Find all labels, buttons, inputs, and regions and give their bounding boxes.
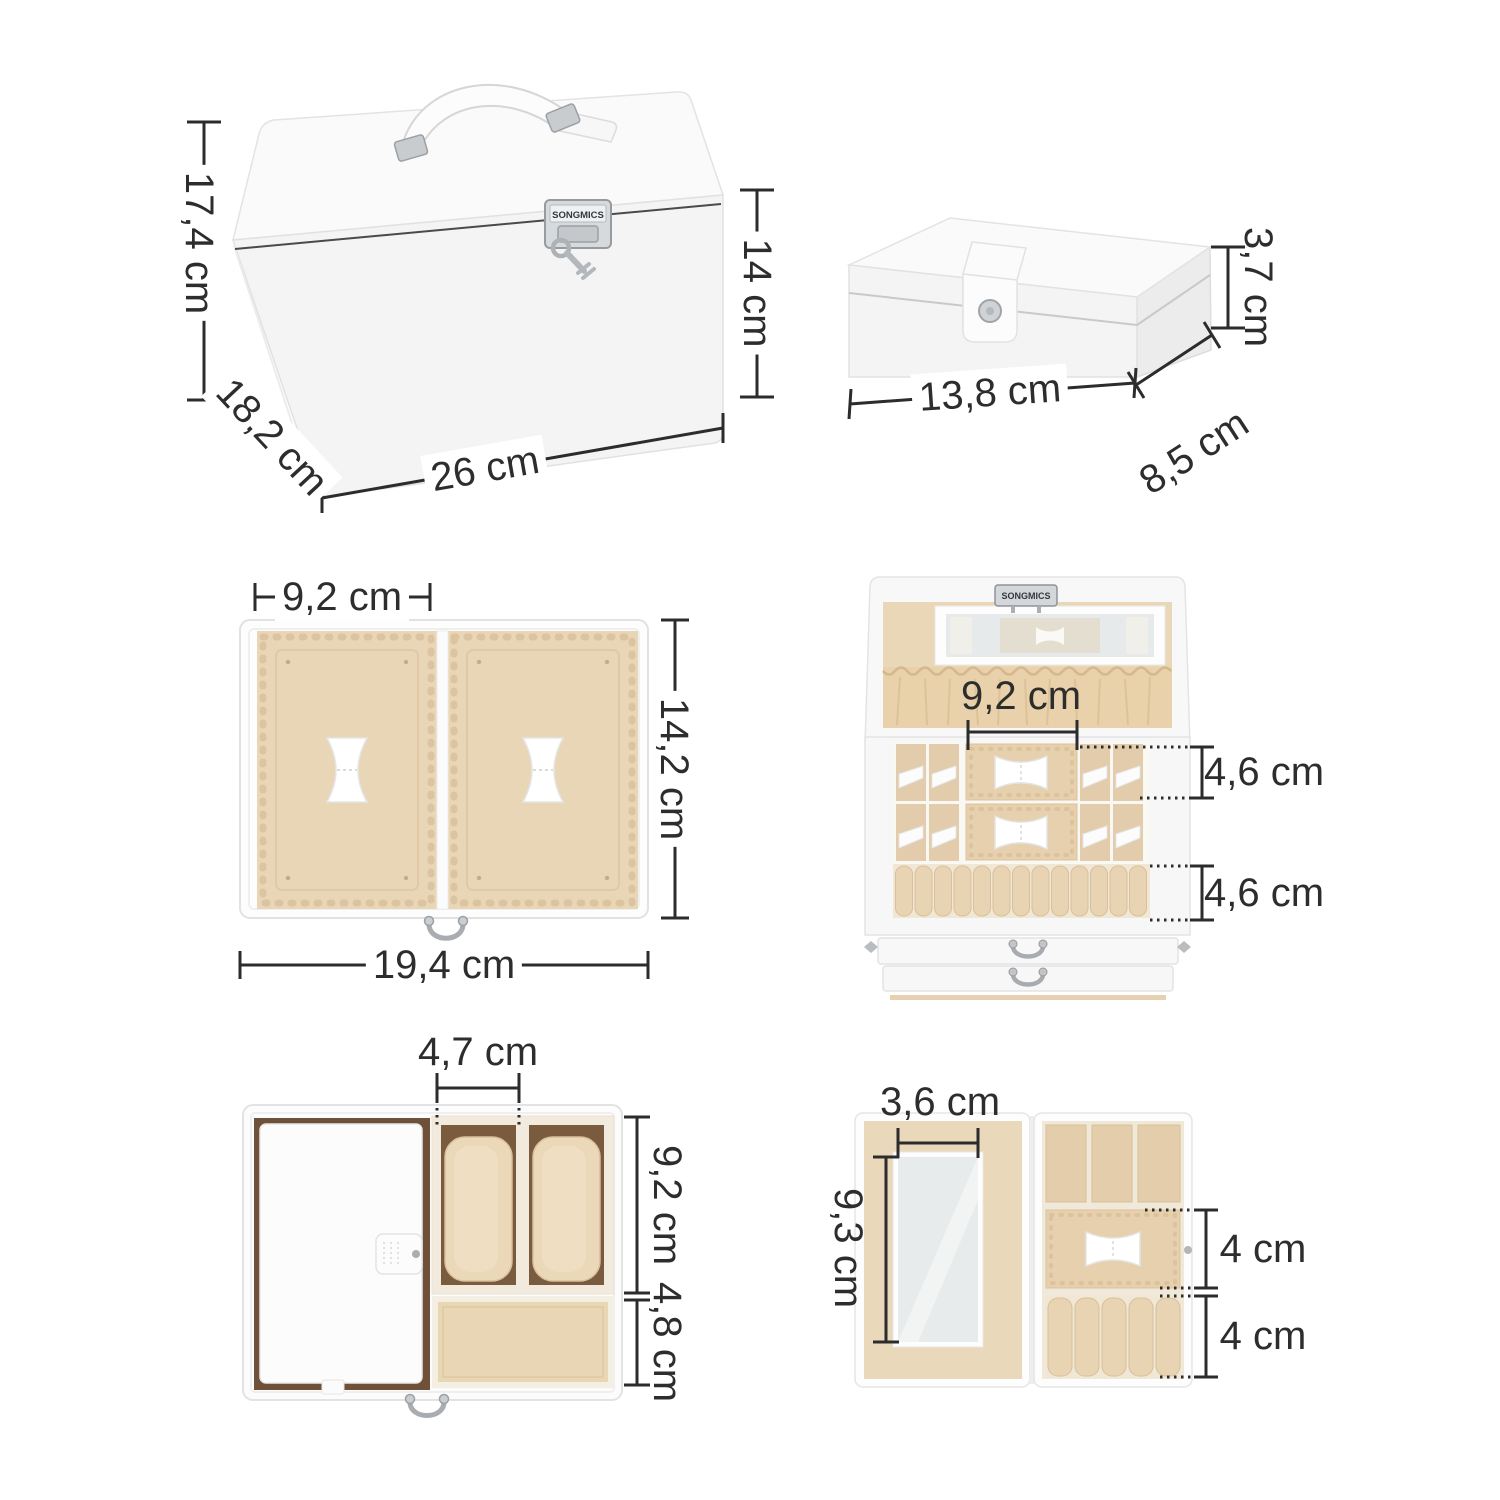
side-clasp-icon [864, 941, 878, 953]
open-compartment [432, 1296, 614, 1388]
snap-strap-icon [963, 242, 1026, 342]
dim-label-top-tier-height: 4,6 cm [1204, 749, 1324, 795]
mirror-flap [855, 1113, 1030, 1387]
drawers [864, 938, 1191, 1000]
top-compartments [1046, 1125, 1180, 1202]
box-body [233, 92, 723, 497]
dim-label-mirror-height: 9,3 cm [825, 1188, 871, 1308]
dim-label-width: 19,4 cm [366, 941, 522, 989]
dim-label-center-compartment-width: 9,2 cm [961, 673, 1081, 719]
ring-rolls-section [1046, 1296, 1180, 1378]
dim-label-mirror-width: 3,6 cm [880, 1079, 1000, 1125]
travel-case-in-drawer [254, 1118, 430, 1394]
dim-label-body-height: 14 cm [733, 232, 781, 355]
brand-logo-text: SONGMICS [552, 210, 604, 221]
dim-label-middle-section-height: 4 cm [1220, 1226, 1307, 1272]
velvet-compartment-right [448, 631, 638, 909]
view-closed-jewelry-box: SONGMICS 17,4 cm 14 cm 26 cm 18,2 cm [150, 50, 850, 550]
brand-logo-text: SONGMICS [1001, 591, 1050, 601]
center-divider [437, 631, 448, 909]
drawer-handle-icon [425, 917, 468, 939]
case-body [849, 218, 1211, 377]
pin-icon [412, 1250, 420, 1258]
bow-compartment [1046, 1210, 1180, 1288]
dim-label-total-height: 17,4 cm [175, 165, 223, 321]
view-lid-tray-top: 9,2 cm 14,2 cm 19,4 cm [230, 550, 730, 990]
dim-label-watch-section-depth: 9,2 cm [644, 1145, 690, 1265]
view-watch-drawer-top: 4,7 cm 9,2 cm 4,8 cm [230, 1030, 700, 1430]
open-lid: SONGMICS [865, 577, 1190, 745]
ring-rolls-row [893, 864, 1150, 918]
dim-label-ring-tier-height: 4,6 cm [1204, 870, 1324, 916]
dim-label-height: 3,7 cm [1235, 227, 1281, 347]
clasp-pin-icon [1184, 1246, 1192, 1254]
view-open-jewelry-box: SONGMICS [850, 555, 1350, 1025]
dim-label-front-section-depth: 4,8 cm [644, 1282, 690, 1402]
product-dimensions-diagram: SONGMICS 17,4 cm 14 cm 26 cm 18,2 cm [0, 0, 1500, 1500]
dim-label-depth: 14,2 cm [650, 691, 698, 847]
velvet-compartment-left [257, 631, 437, 909]
dim-label-compartment-width: 9,2 cm [275, 573, 409, 621]
storage-page [1034, 1113, 1192, 1387]
view-travel-case-closed: 3,7 cm 13,8 cm 8,5 cm [820, 180, 1340, 520]
view-travel-case-open: 3,6 cm 9,3 cm 4 cm 4 cm [820, 1080, 1340, 1430]
dim-label-watch-slot-width: 4,7 cm [418, 1029, 538, 1075]
side-clasp-icon [1177, 941, 1191, 953]
watch-pillow-section [432, 1116, 614, 1294]
box-body-open [864, 737, 1191, 1000]
dim-label-ring-section-height: 4 cm [1220, 1313, 1307, 1359]
watch-drawer-illustration [230, 1030, 700, 1430]
